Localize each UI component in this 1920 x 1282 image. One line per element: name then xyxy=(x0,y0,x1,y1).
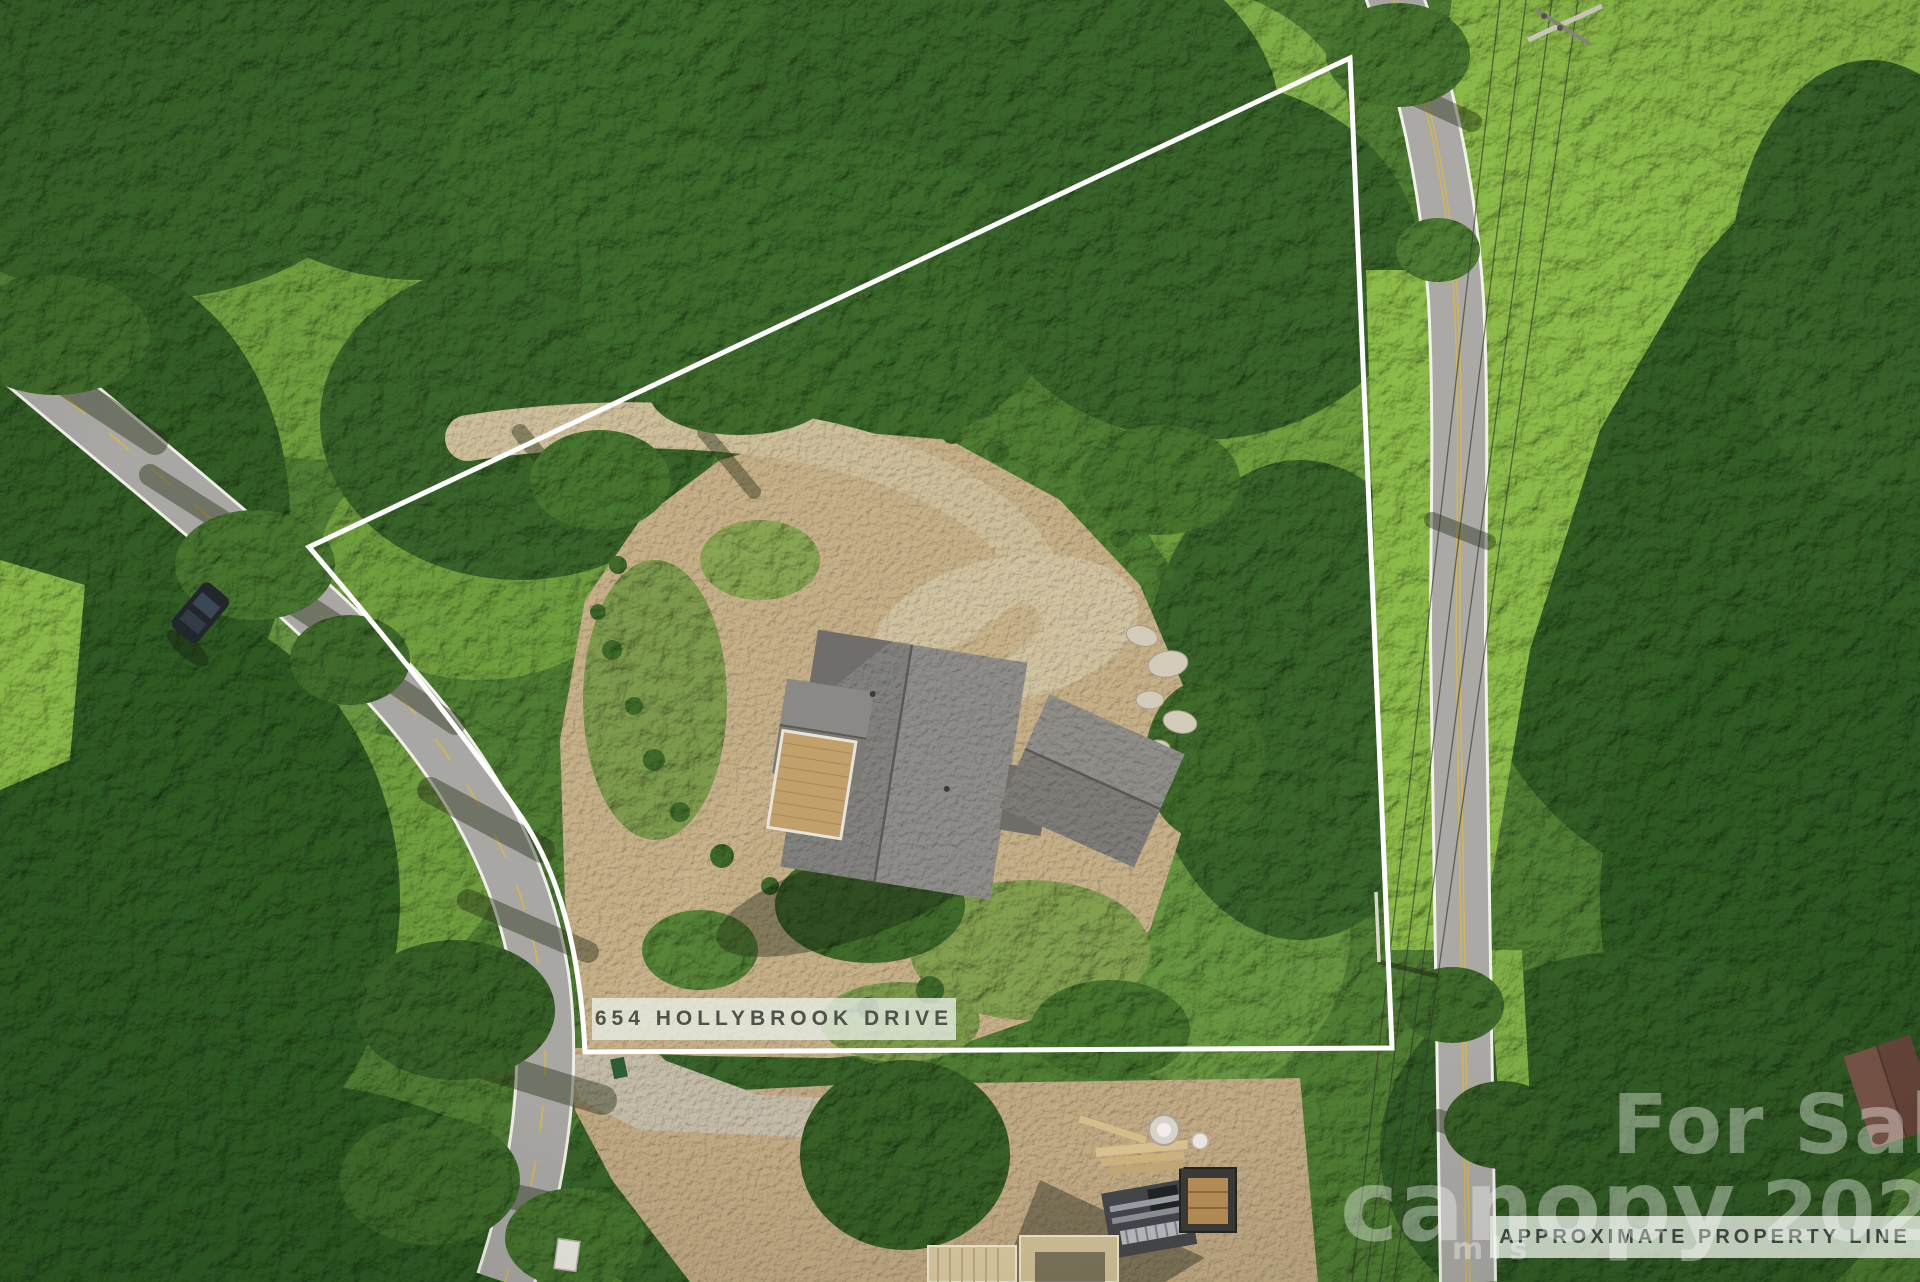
property-line-label: APPROXIMATE PROPERTY LINE xyxy=(1490,1216,1920,1258)
vignette xyxy=(0,0,1920,1282)
address-label-text: 654 HOLLYBROOK DRIVE xyxy=(595,1007,953,1031)
property-line-label-text: APPROXIMATE PROPERTY LINE xyxy=(1499,1226,1911,1249)
aerial-scene xyxy=(0,0,1920,1282)
aerial-photo: 654 HOLLYBROOK DRIVE APPROXIMATE PROPERT… xyxy=(0,0,1920,1282)
address-label: 654 HOLLYBROOK DRIVE xyxy=(592,998,956,1040)
